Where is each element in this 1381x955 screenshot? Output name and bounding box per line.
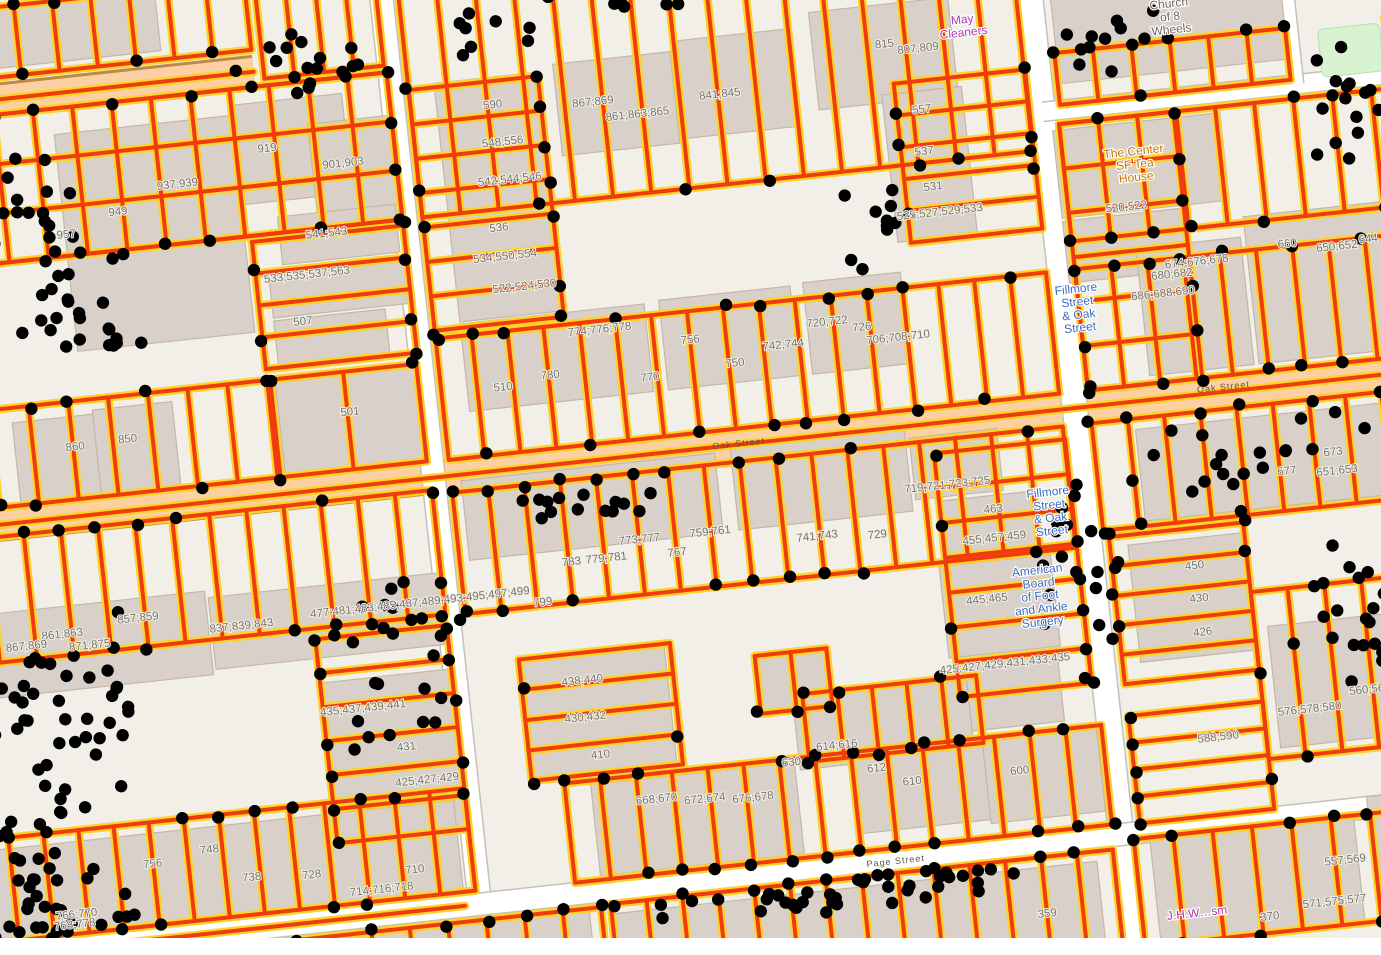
housenumber-label: 677 [1277, 465, 1297, 479]
housenumber-label: 799 [533, 596, 553, 610]
housenumber-label: 750 [725, 356, 745, 370]
housenumber-label: 510 [493, 381, 513, 395]
housenumber-label: 919 [257, 142, 277, 156]
housenumber-label: 610 [902, 775, 922, 789]
housenumber-label: 710 [405, 863, 425, 877]
housenumber-label: 815 [874, 37, 894, 51]
green-areas-layer [1317, 23, 1381, 77]
housenumber-label: 729 [867, 528, 887, 542]
housenumber-label: 756 [142, 857, 162, 871]
housenumber-label: 770 [640, 371, 660, 385]
housenumber-label: 660 [1277, 237, 1297, 251]
housenumber-label: 756 [680, 333, 700, 347]
housenumber-label: 612 [866, 762, 886, 776]
map-canvas[interactable]: 590548;556542;544;546536534;550;554522;5… [0, 0, 1381, 955]
housenumber-label: 957 [56, 228, 76, 242]
housenumber-label: 767 [667, 546, 687, 560]
housenumber-label: 359 [1037, 907, 1057, 921]
housenumber-label: 728 [302, 868, 322, 882]
housenumber-label: 748 [199, 843, 219, 857]
housenumber-label: 431 [396, 740, 416, 754]
housenumber-label: 738 [242, 871, 262, 885]
housenumber-label: 949 [108, 205, 128, 219]
housenumber-label: 430 [1189, 592, 1209, 606]
building [92, 402, 181, 494]
housenumber-label: 673 [1323, 445, 1343, 459]
housenumber-label: 531 [923, 180, 943, 194]
housenumber-label: 507 [293, 315, 313, 329]
housenumber-label: 370 [1260, 910, 1280, 924]
map-viewport[interactable]: 590548;556542;544;546536534;550;554522;5… [0, 0, 1381, 955]
housenumber-label: 780 [540, 369, 560, 383]
housenumber-label: 557 [912, 103, 932, 117]
building [675, 29, 800, 139]
housenumber-label: 590 [482, 98, 502, 112]
housenumber-label: 600 [1010, 764, 1030, 778]
map-svg[interactable]: 590548;556542;544;546536534;550;554522;5… [0, 0, 1381, 955]
housenumber-label: 850 [117, 433, 137, 447]
housenumber-label: 463 [983, 502, 1003, 516]
housenumber-label: 426 [1193, 626, 1213, 640]
housenumber-label: 410 [590, 748, 610, 762]
bottom-whitespace-bar [0, 938, 1381, 955]
housenumber-label: 860 [65, 440, 85, 454]
housenumber-label: 501 [340, 405, 360, 419]
housenumber-label: 630 [781, 756, 801, 770]
housenumber-label: 536 [489, 221, 509, 235]
housenumber-label: 450 [1184, 559, 1204, 573]
rotated-map-layer: 590548;556542;544;546536534;550;554522;5… [0, 0, 1381, 955]
housenumber-label: 537 [914, 145, 934, 159]
housenumber-label: 726 [852, 321, 872, 335]
housenumber-label: 644 [1358, 232, 1379, 246]
housenumber-label: 783 [561, 555, 581, 569]
